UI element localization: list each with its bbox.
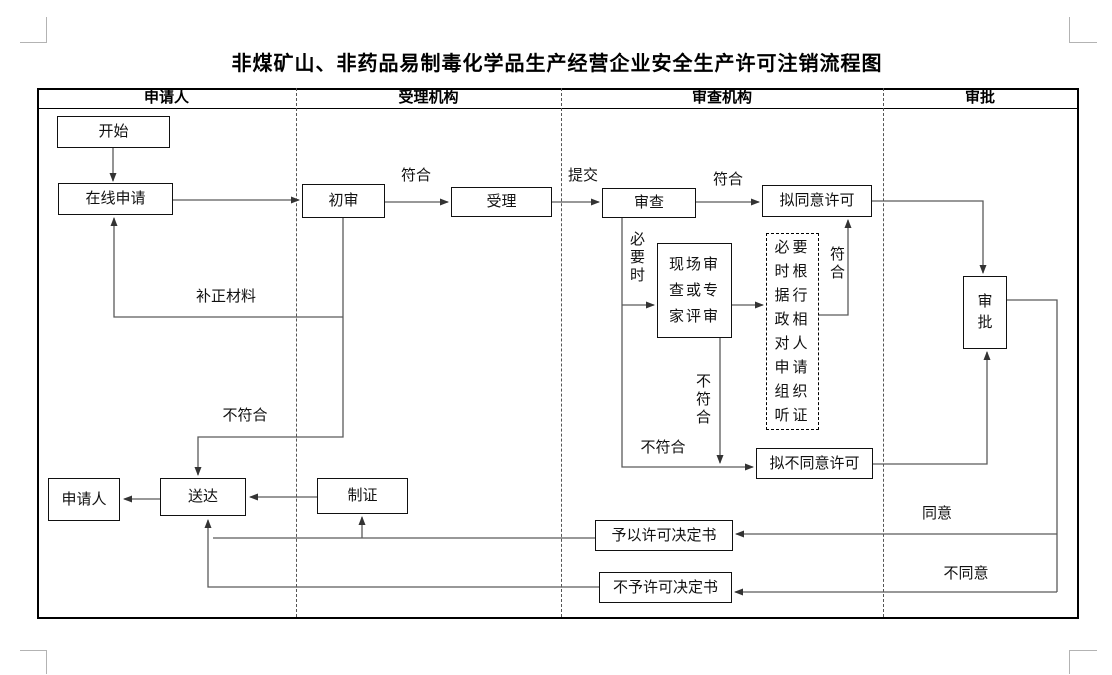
node-onsite-or-expert-review: 现场审 查或专 家评审 [657, 243, 732, 338]
edge-draft-approve-to-approval [872, 201, 983, 273]
node-initial-review: 初审 [302, 184, 385, 218]
edge-label-agree: 同意 [907, 506, 967, 523]
node-deny-decision: 不予许可决定书 [599, 572, 732, 603]
edge-label-not-conform-onsite: 不 符 合 [695, 373, 712, 427]
edge-deny-to-deliver [208, 520, 599, 587]
node-make-certificate: 制证 [317, 478, 408, 514]
node-approval: 审 批 [963, 276, 1007, 349]
node-review: 审查 [602, 188, 696, 218]
edge-label-submit: 提交 [553, 168, 613, 185]
edge-approval-out [1007, 300, 1057, 592]
edge-label-not-conform-review: 不符合 [628, 440, 698, 457]
node-draft-approve-license: 拟同意许可 [762, 185, 872, 217]
node-deliver: 送达 [160, 478, 246, 516]
node-hearing: 必要 时根 据行 政相 对人 申请 组织 听证 [766, 233, 819, 430]
node-accept: 受理 [451, 187, 552, 217]
edge-initial-to-deliver [198, 218, 343, 475]
edge-label-supplement-materials: 补正材料 [180, 289, 272, 306]
flowchart-page: 非煤矿山、非药品易制毒化学品生产经营企业安全生产许可注销流程图 申请人 受理机构… [0, 0, 1112, 675]
edge-label-necessary: 必 要 时 [629, 231, 646, 285]
edge-label-conform-hearing: 符 合 [829, 246, 846, 282]
node-online-apply: 在线申请 [58, 183, 173, 215]
node-draft-deny-license: 拟不同意许可 [756, 448, 873, 479]
node-grant-decision: 予以许可决定书 [595, 520, 733, 551]
node-applicant: 申请人 [48, 478, 120, 521]
edge-draft-deny-to-approval [873, 352, 987, 464]
edge-label-not-conform-initial: 不符合 [210, 408, 280, 425]
edge-label-disagree: 不同意 [928, 566, 1004, 583]
edge-label-conform-initial: 符合 [386, 168, 446, 185]
node-start: 开始 [57, 116, 170, 148]
edge-label-conform-review: 符合 [698, 172, 758, 189]
